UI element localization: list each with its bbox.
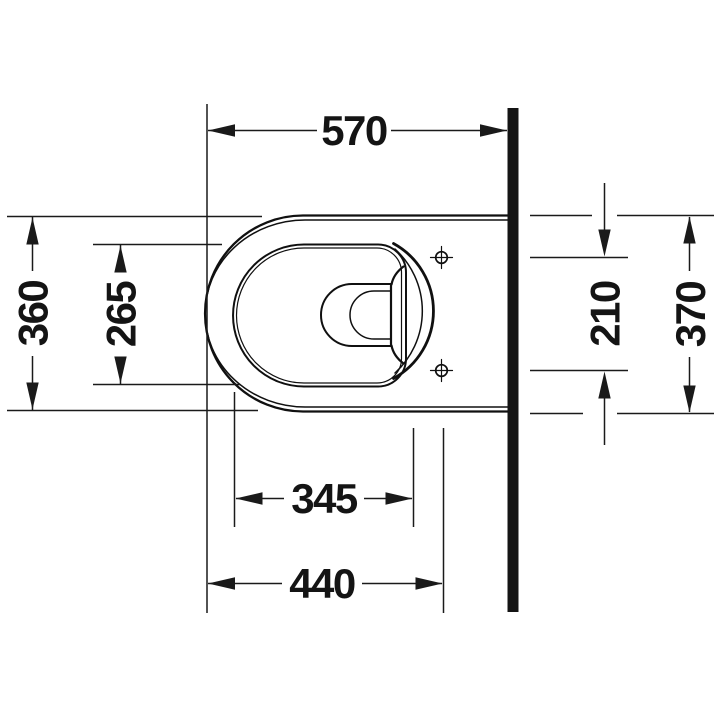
trapway-outline — [350, 291, 391, 339]
dim-265-arrow-top — [114, 246, 126, 273]
dim-570-label: 570 — [321, 107, 387, 154]
fixing-hole-top — [431, 247, 453, 269]
back-rim-crescent-inner — [395, 249, 422, 373]
dim-210: 210 — [530, 183, 629, 445]
fixing-hole-bottom — [431, 360, 453, 382]
dim-440-arrow-left — [208, 577, 235, 589]
dim-265-label: 265 — [98, 281, 145, 348]
dim-345-label: 345 — [291, 475, 358, 522]
dim-210-arrow-top — [598, 230, 610, 257]
dim-440-label: 440 — [289, 560, 355, 607]
dim-440-arrow-right — [416, 577, 443, 589]
dim-210-label: 210 — [582, 281, 629, 347]
dim-370-arrow-bottom — [683, 386, 695, 413]
dim-370-arrow-top — [683, 217, 695, 244]
dim-370-label: 370 — [667, 282, 714, 348]
dim-265-arrow-bottom — [114, 357, 126, 384]
technical-drawing-canvas: 570 360 265 210 370 345 — [0, 0, 720, 720]
crosshair-lines-bottom — [431, 360, 453, 382]
bowl-rim-inner — [237, 248, 402, 383]
crosshair-lines-top — [431, 247, 453, 269]
sump-outline — [321, 284, 391, 346]
dim-345-arrow-right — [386, 492, 413, 504]
wall-section — [508, 108, 519, 612]
drawing-page: 570 360 265 210 370 345 — [0, 0, 720, 720]
toilet-body — [205, 216, 512, 412]
dim-360-label: 360 — [10, 281, 57, 347]
dim-570-arrow-left — [208, 124, 235, 136]
dim-570-arrow-right — [480, 124, 507, 136]
dim-345-arrow-left — [236, 492, 263, 504]
dim-360-arrow-bottom — [26, 383, 38, 410]
dim-360-arrow-top — [26, 218, 38, 245]
dim-210-arrow-bottom — [598, 372, 610, 399]
